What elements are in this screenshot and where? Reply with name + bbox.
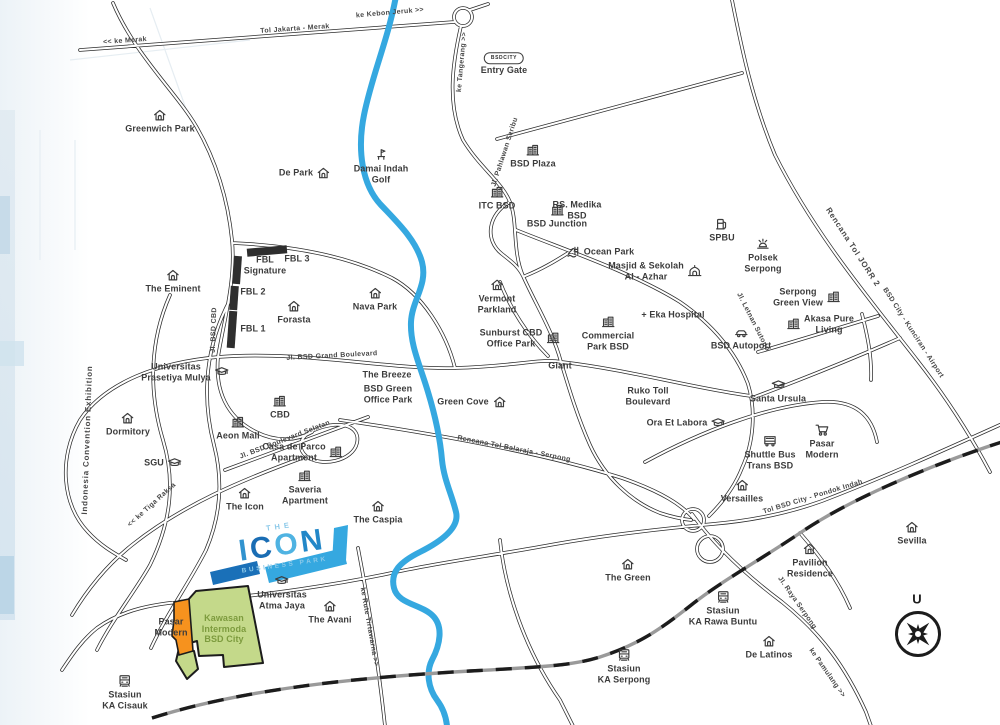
building-icon [489, 185, 504, 200]
poi-ocean-park: Ocean Park [566, 245, 635, 260]
house-icon [316, 166, 331, 181]
poi-saveria-apartment: Saveria Apartment [282, 468, 328, 505]
poi-the-caspia: The Caspia [353, 499, 402, 526]
poi-label: Ora Et Labora [647, 418, 708, 429]
poi-cbd: CBD [270, 394, 290, 421]
poi-label: Aeon Mall [216, 431, 259, 442]
poi-the-eminent: The Eminent [145, 268, 200, 295]
poi-label: Santa Ursula [750, 394, 806, 405]
golf-icon [374, 147, 389, 162]
poi-label: The Avani [308, 615, 351, 626]
waterpark-icon [566, 245, 581, 260]
poi-label: BSD Plaza [510, 159, 555, 170]
poi-label: Dormitory [106, 427, 150, 438]
poi-label: Entry Gate [481, 65, 528, 76]
poi-label: Casa de Parco Apartment [262, 441, 325, 462]
poi-label: SPBU [709, 233, 734, 244]
poi-forasta: Forasta [277, 299, 310, 326]
poi-giant: Giant [548, 361, 572, 372]
poi-universitas-prasetiya-mulya: Universitas Prasetiya Mulya [141, 361, 229, 382]
train-icon [616, 647, 631, 662]
poi-label: The Eminent [145, 284, 200, 295]
building-icon [231, 415, 246, 430]
poi-label: Sevilla [897, 536, 926, 547]
building-icon [545, 331, 560, 346]
house-icon [489, 277, 504, 292]
poi-casa-de-parco-apartment: Casa de Parco Apartment [262, 441, 343, 462]
poi-label: Universitas Atma Jaya [257, 589, 307, 610]
gradcap-icon [770, 378, 785, 393]
poi-bsd-junction: BSD Junction [527, 203, 587, 230]
poi-pasar-modern-east: Pasar Modern [805, 422, 838, 459]
poi-de-latinos: De Latinos [745, 634, 792, 661]
building-icon [601, 314, 616, 329]
poi-universitas-atma-jaya: Universitas Atma Jaya [257, 573, 307, 610]
poi-polsek-serpong: Polsek Serpong [744, 236, 781, 273]
bsd-city-badge: BSDCITY [484, 52, 524, 64]
building-icon [298, 468, 313, 483]
poi-serpong-green-view: Serpong Green View [773, 286, 841, 307]
house-icon [323, 599, 338, 614]
poi-label: CBD [270, 410, 290, 421]
house-icon [368, 286, 383, 301]
house-icon [238, 486, 253, 501]
building-icon [549, 203, 564, 218]
poi-label: FBL 1 [240, 324, 265, 335]
poi-versailles: Versailles [721, 478, 764, 505]
building-icon [525, 143, 540, 158]
poi-masjid-sekolah-al-azhar: Masjid & Sekolah Al - Azhar [608, 260, 702, 281]
poi-fbl-2: FBL 2 [240, 287, 265, 298]
poi-label: Giant [548, 361, 572, 372]
poi-santa-ursula: Santa Ursula [750, 378, 806, 405]
gradcap-icon [214, 365, 229, 380]
poi-label: Stasiun KA Rawa Buntu [689, 605, 757, 626]
siren-icon [755, 236, 770, 251]
poi-label: Masjid & Sekolah Al - Azhar [608, 260, 684, 281]
poi-label: ITC BSD [479, 201, 516, 212]
building-icon [826, 290, 841, 305]
gradcap-icon [710, 416, 725, 431]
poi-akasa-pure-living: Akasa Pure Living [786, 313, 854, 334]
poi-label: Nava Park [353, 302, 397, 313]
poi-label: Akasa Pure Living [804, 313, 854, 334]
poi-bsd-green-office-park: BSD Green Office Park [364, 383, 413, 404]
poi-label: BSD Green Office Park [364, 383, 413, 404]
house-icon [734, 478, 749, 493]
poi-label: FBL 2 [240, 287, 265, 298]
train-icon [118, 673, 133, 688]
poi-label: De Park [279, 168, 313, 179]
poi-label: The Green [605, 573, 650, 584]
house-icon [803, 541, 818, 556]
poi-label: Stasiun KA Serpong [598, 663, 651, 684]
poi-fbl-signature: FBL Signature [244, 254, 286, 275]
poi-label: Sunburst CBD Office Park [480, 327, 543, 348]
mosque-icon [687, 264, 702, 279]
poi-label: Pavilion Residence [787, 557, 833, 578]
poi-ruko-toll-boulevard: Ruko Toll Boulevard [626, 385, 671, 406]
poi-greenwich-park: Greenwich Park [125, 108, 194, 135]
bsd-city-area-map: THE ICON BUSINESS PARK U Tol Jakarta - M… [0, 0, 1000, 725]
gas-icon [715, 217, 730, 232]
poi-label: The Caspia [353, 515, 402, 526]
poi-label: Ocean Park [584, 247, 635, 258]
compass-north-label: U [912, 592, 921, 607]
house-icon [492, 395, 507, 410]
poi-label: Universitas Prasetiya Mulya [141, 361, 211, 382]
poi-label: Pasar Modern [154, 616, 187, 637]
poi-spbu: SPBU [709, 217, 734, 244]
gradcap-icon [167, 456, 182, 471]
poi-stasiun-ka-rawa-buntu: Stasiun KA Rawa Buntu [689, 589, 757, 626]
poi-ora-et-labora: Ora Et Labora [647, 416, 726, 431]
poi-pavilion-residence: Pavilion Residence [787, 541, 833, 578]
poi-label: De Latinos [745, 650, 792, 661]
car-icon [733, 325, 748, 340]
bus-icon [762, 433, 777, 448]
poi-label: BSD Junction [527, 219, 587, 230]
poi-the-avani: The Avani [308, 599, 351, 626]
poi-label: The Breeze [362, 370, 411, 381]
poi-itc-bsd: ITC BSD [479, 185, 516, 212]
house-icon [904, 520, 919, 535]
poi-label: Versailles [721, 494, 764, 505]
poi-label: Greenwich Park [125, 124, 194, 135]
poi-de-park: De Park [279, 166, 331, 181]
poi-label: BSD Autoport [711, 341, 771, 352]
poi-damai-indah-golf: Damai Indah Golf [354, 147, 409, 184]
poi-commercial-park-bsd: Commercial Park BSD [582, 314, 635, 351]
poi-aeon-mall: Aeon Mall [216, 415, 259, 442]
poi-the-icon: The Icon [226, 486, 264, 513]
poi-shuttle-bus-trans-bsd: Shuttle Bus Trans BSD [744, 433, 795, 470]
poi-sgu: SGU [144, 456, 182, 471]
house-icon [761, 634, 776, 649]
house-icon [287, 299, 302, 314]
house-icon [370, 499, 385, 514]
poi-sunburst-cbd-office-park: Sunburst CBD Office Park [480, 327, 561, 348]
poi-label: FBL 3 [284, 254, 309, 265]
poi-label: Polsek Serpong [744, 252, 781, 273]
poi-label: Forasta [277, 315, 310, 326]
poi-label: Ruko Toll Boulevard [626, 385, 671, 406]
compass-rose-icon [895, 611, 940, 656]
poi-label: Green Cove [437, 397, 489, 408]
poi-stasiun-ka-serpong: Stasiun KA Serpong [598, 647, 651, 684]
poi-green-cove: Green Cove [437, 395, 507, 410]
poi-label: Commercial Park BSD [582, 330, 635, 351]
poi-label: Kawasan Intermoda BSD City [202, 613, 246, 645]
train-icon [716, 589, 731, 604]
poi-sevilla: Sevilla [897, 520, 926, 547]
poi-entry-gate: BSDCITYEntry Gate [481, 52, 528, 76]
poi-label: The Icon [226, 502, 264, 513]
poi-label: Vermont Parkland [478, 293, 517, 314]
poi-fbl-1: FBL 1 [240, 324, 265, 335]
poi-fbl-3: FBL 3 [284, 254, 309, 265]
house-icon [153, 108, 168, 123]
building-icon [786, 317, 801, 332]
poi-the-green: The Green [605, 557, 650, 584]
poi-kawasan-intermoda-bsd-city: Kawasan Intermoda BSD City [202, 613, 246, 645]
poi-bsd-autoport: BSD Autoport [711, 325, 771, 352]
building-icon [273, 394, 288, 409]
house-icon [620, 557, 635, 572]
poi-nava-park: Nava Park [353, 286, 397, 313]
cart-icon [814, 422, 829, 437]
poi-label: Shuttle Bus Trans BSD [744, 449, 795, 470]
poi-stasiun-ka-cisauk: Stasiun KA Cisauk [102, 673, 148, 710]
gradcap-icon [275, 573, 290, 588]
poi-label: + Eka Hospital [641, 310, 704, 321]
building-icon [329, 445, 344, 460]
poi-label: Stasiun KA Cisauk [102, 689, 148, 710]
poi-pasar-modern-west: Pasar Modern [154, 616, 187, 637]
poi-eka-hospital: + Eka Hospital [641, 310, 704, 321]
poi-dormitory: Dormitory [106, 411, 150, 438]
poi-label: FBL Signature [244, 254, 286, 275]
poi-label: Saveria Apartment [282, 484, 328, 505]
poi-the-breeze: The Breeze [362, 370, 411, 381]
poi-label: SGU [144, 458, 164, 469]
poi-vermont-parkland: Vermont Parkland [478, 277, 517, 314]
poi-label: Pasar Modern [805, 438, 838, 459]
house-icon [121, 411, 136, 426]
poi-label: Damai Indah Golf [354, 163, 409, 184]
house-icon [165, 268, 180, 283]
poi-label: Serpong Green View [773, 286, 823, 307]
poi-bsd-plaza: BSD Plaza [510, 143, 555, 170]
